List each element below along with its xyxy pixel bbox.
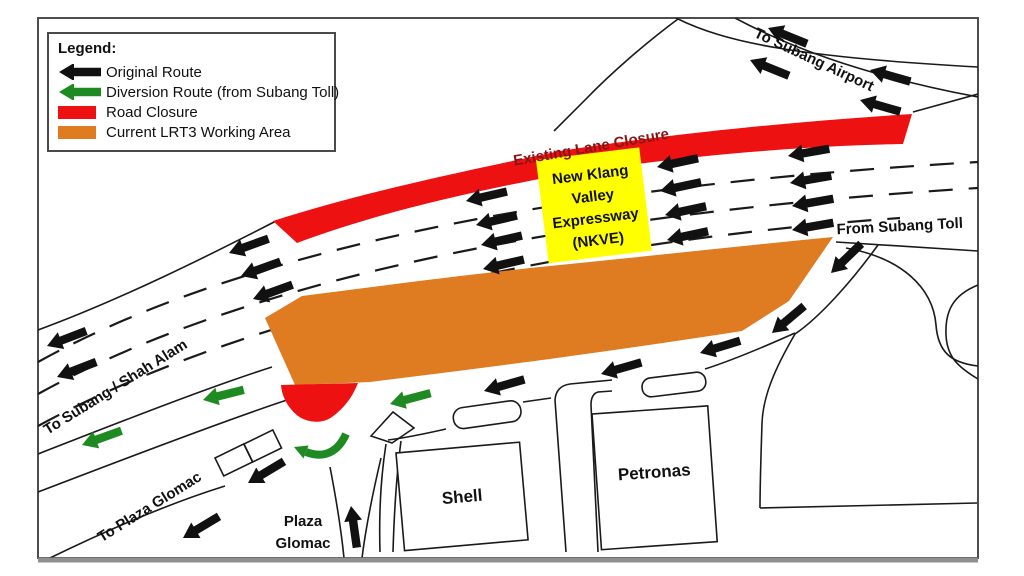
green-arrow-icon <box>58 84 106 100</box>
red-swatch-icon <box>58 106 106 119</box>
legend-item-label: Current LRT3 Working Area <box>106 124 291 141</box>
plaza-glomac-label: Plaza <box>284 513 323 530</box>
orange-swatch-icon <box>58 126 106 139</box>
legend-item-road-closure: Road Closure <box>58 102 330 122</box>
shell-label: Shell <box>441 486 483 508</box>
legend: Legend: Original Route Diversion Route (… <box>47 32 336 152</box>
legend-item-label: Original Route <box>106 64 202 81</box>
legend-item-working-area: Current LRT3 Working Area <box>58 122 330 142</box>
legend-item-label: Diversion Route (from Subang Toll) <box>106 84 339 101</box>
legend-title: Legend: <box>58 40 330 57</box>
diversion-map-page: Shell Petronas New Klang Valley Expressw… <box>0 0 1024 576</box>
nkve-label-box: New Klang Valley Expressway (NKVE) <box>536 147 652 263</box>
legend-item-diversion-route: Diversion Route (from Subang Toll) <box>58 82 330 102</box>
black-arrow-icon <box>58 64 106 80</box>
legend-item-original-route: Original Route <box>58 62 330 82</box>
plaza-glomac-label: Glomac <box>275 535 330 552</box>
legend-item-label: Road Closure <box>106 104 198 121</box>
